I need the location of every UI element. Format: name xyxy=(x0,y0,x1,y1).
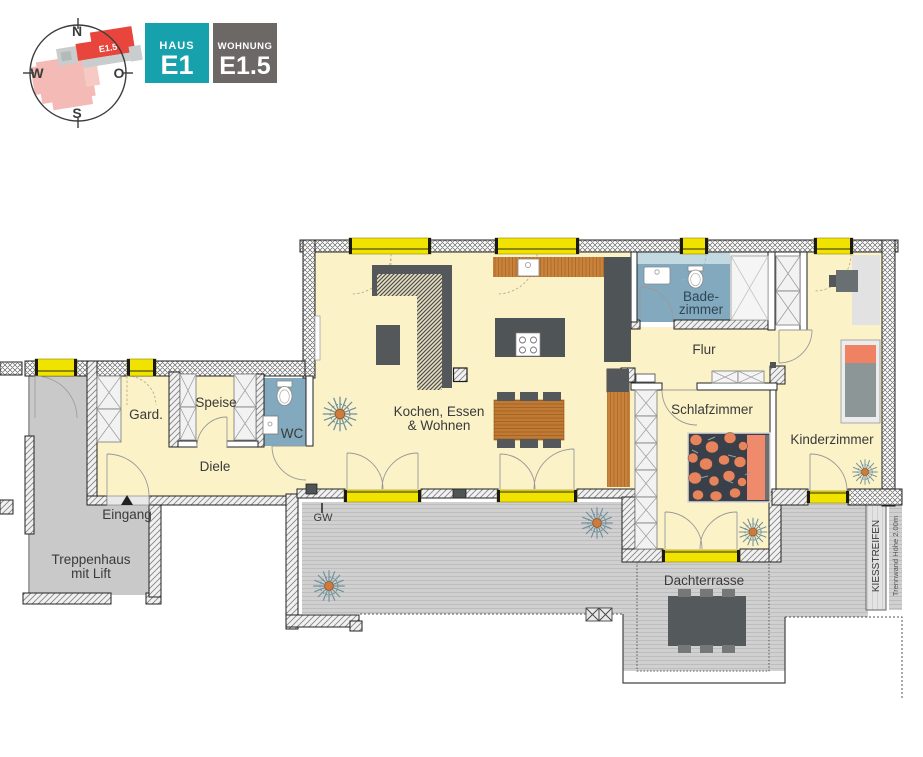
svg-text:zimmer: zimmer xyxy=(679,302,724,317)
svg-text:N: N xyxy=(72,23,82,39)
svg-text:Kochen, Essen: Kochen, Essen xyxy=(394,404,485,419)
svg-text:Schlafzimmer: Schlafzimmer xyxy=(671,402,753,417)
svg-text:KIESSTREIFEN: KIESSTREIFEN xyxy=(871,520,882,592)
svg-text:E1.5: E1.5 xyxy=(219,52,271,80)
svg-text:mit Lift: mit Lift xyxy=(71,566,111,581)
svg-text:Speise: Speise xyxy=(195,395,236,410)
svg-text:Diele: Diele xyxy=(200,459,231,474)
svg-text:Eingang: Eingang xyxy=(102,507,152,522)
svg-text:E1: E1 xyxy=(160,50,193,80)
svg-text:Gard.: Gard. xyxy=(129,407,163,422)
svg-text:O: O xyxy=(114,65,125,81)
svg-text:S: S xyxy=(72,105,81,121)
svg-text:Treppenhaus: Treppenhaus xyxy=(51,552,130,567)
svg-text:WOHNUNG: WOHNUNG xyxy=(218,41,273,52)
svg-text:Flur: Flur xyxy=(692,342,716,357)
svg-text:Trennwand Höhe 2.00m: Trennwand Höhe 2.00m xyxy=(891,516,900,596)
svg-text:W: W xyxy=(30,65,44,81)
svg-text:Dachterrasse: Dachterrasse xyxy=(664,573,744,588)
svg-text:Kinderzimmer: Kinderzimmer xyxy=(790,432,874,447)
svg-text:WC: WC xyxy=(281,426,304,441)
svg-text:& Wohnen: & Wohnen xyxy=(408,418,471,433)
svg-text:GW: GW xyxy=(314,512,334,524)
